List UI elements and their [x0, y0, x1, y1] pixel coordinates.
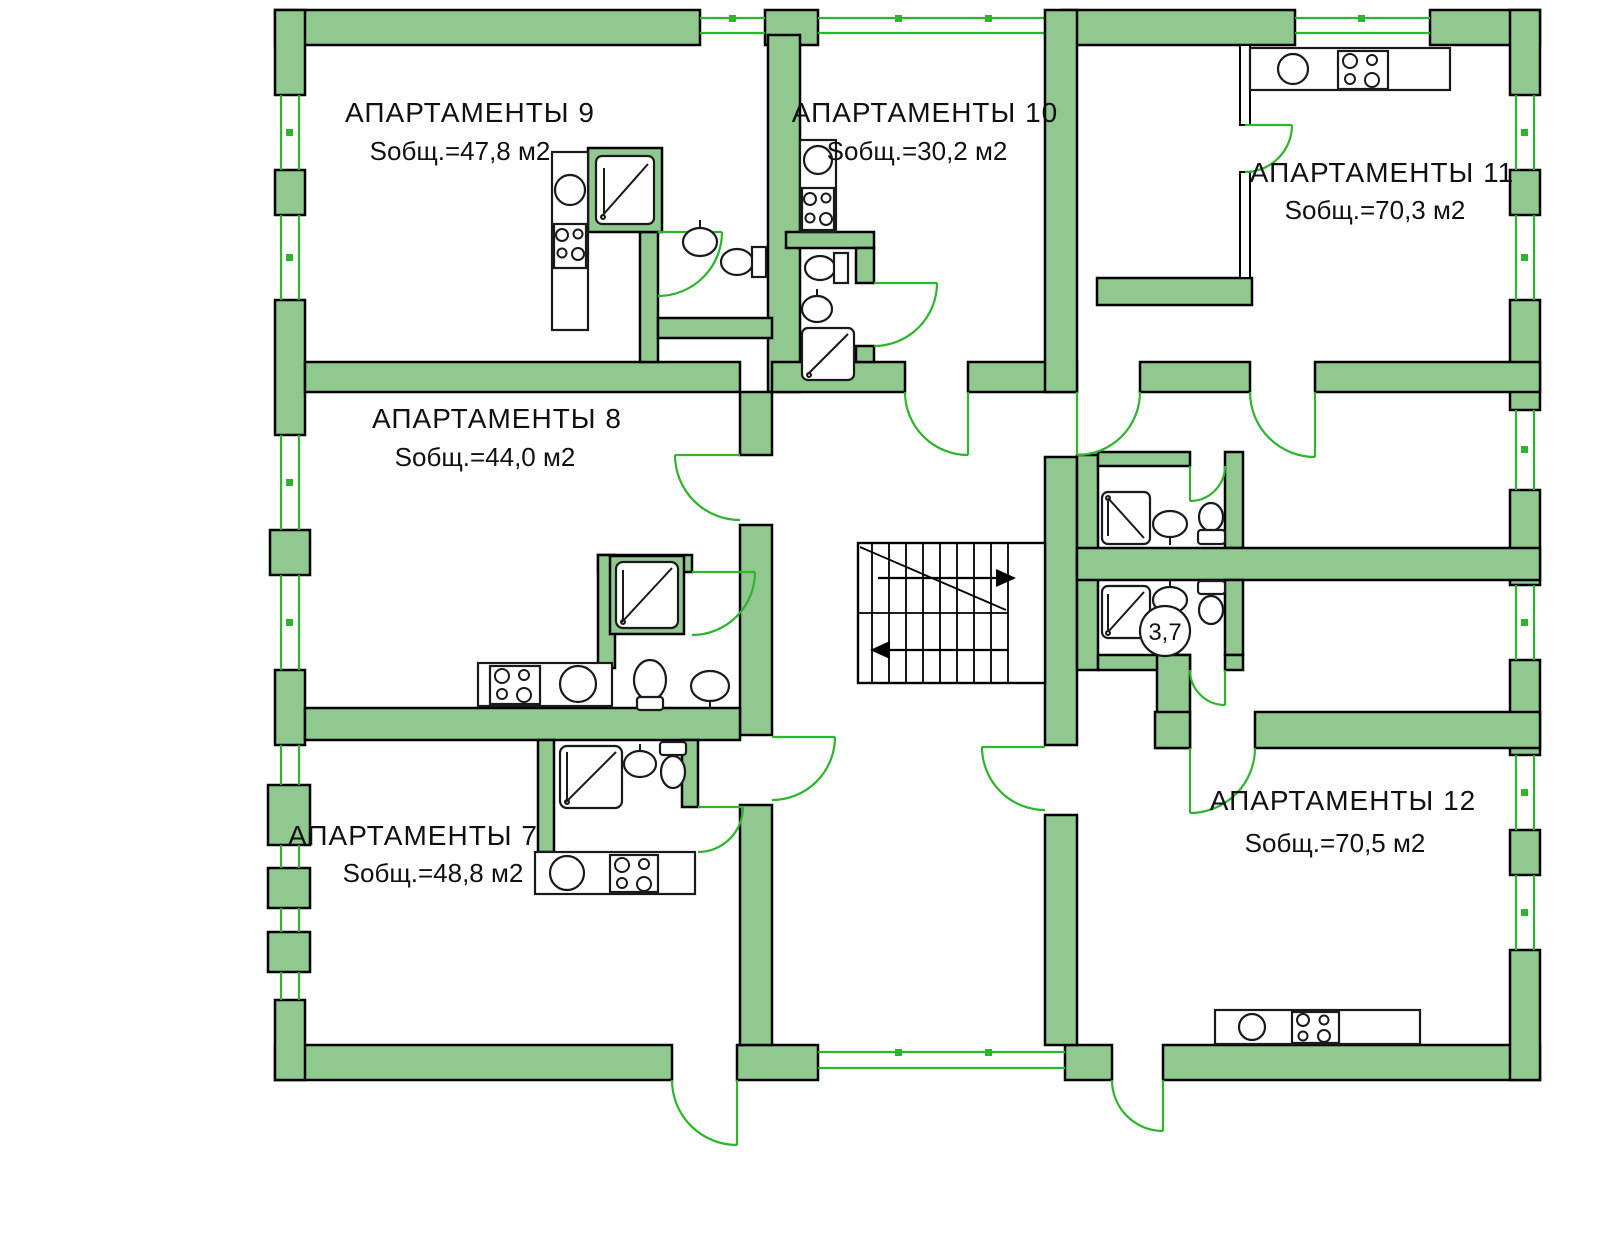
floor-plan-page: 3,7 АПАРТАМЕНТЫ 9 Sобщ.=47,8 м2 АПАРТАМЕ…	[0, 0, 1600, 1233]
stove-icon	[610, 855, 658, 892]
shower-icon	[802, 328, 854, 380]
toilet-icon	[660, 742, 686, 788]
washbasin-icon	[683, 220, 717, 256]
shower-icon	[596, 156, 654, 224]
apartment-11-area: Sобщ.=70,3 м2	[1285, 195, 1466, 225]
door-corridor-north-left	[905, 392, 968, 455]
toilet-icon	[634, 660, 666, 710]
stove-icon	[554, 224, 586, 268]
apartment-10-area: Sобщ.=30,2 м2	[827, 136, 1008, 166]
stove-icon	[1292, 1012, 1339, 1043]
stove-icon	[490, 666, 540, 704]
apartment-7-area: Sобщ.=48,8 м2	[343, 858, 524, 888]
stove-icon	[1338, 51, 1388, 89]
door-apt11-entry	[1077, 392, 1140, 455]
door-apt10-bath	[874, 283, 937, 346]
room-labels: АПАРТАМЕНТЫ 9 Sобщ.=47,8 м2 АПАРТАМЕНТЫ …	[288, 97, 1514, 888]
apartment-9-area: Sобщ.=47,8 м2	[370, 136, 551, 166]
apartment-11-name: АПАРТАМЕНТЫ 11	[1250, 157, 1514, 188]
room-area-badge: 3,7	[1140, 606, 1190, 656]
kitchen-counter-apt11	[1250, 48, 1450, 90]
kitchen-sink-icon	[555, 175, 585, 205]
apartment-12-area: Sобщ.=70,5 м2	[1245, 828, 1426, 858]
washbasin-icon	[624, 744, 656, 777]
apartment-7-name: АПАРТАМЕНТЫ 7	[288, 820, 538, 851]
apartment-8-name: АПАРТАМЕНТЫ 8	[372, 403, 622, 434]
kitchen-counter-apt12	[1215, 1010, 1420, 1044]
apartment-8-area: Sобщ.=44,0 м2	[395, 442, 576, 472]
kitchen-sink-icon	[550, 856, 584, 890]
door-bath12	[1190, 670, 1225, 705]
kitchen-counter-apt9	[552, 152, 588, 330]
door-apt8-entry	[675, 455, 740, 520]
apartment-12-name: АПАРТАМЕНТЫ 12	[1210, 785, 1476, 816]
entrance-door-left	[672, 1080, 737, 1145]
staircase	[858, 543, 1045, 683]
stove-icon	[802, 188, 834, 230]
shower-icon	[1102, 492, 1150, 544]
shower-icon	[560, 746, 622, 808]
entrance-door-right	[1112, 1080, 1163, 1131]
kitchen-sink-icon	[1239, 1014, 1265, 1040]
washbasin-icon	[802, 289, 832, 322]
apartment-9-name: АПАРТАМЕНТЫ 9	[345, 97, 595, 128]
toilet-icon	[721, 247, 766, 277]
door-apt11-room	[1250, 392, 1315, 457]
kitchen-sink-icon	[560, 666, 596, 702]
door-apt7-bath	[698, 807, 743, 852]
toilet-icon	[1198, 581, 1225, 624]
door-apt12-entry	[982, 747, 1045, 810]
bathroom-area-label: 3,7	[1148, 619, 1181, 646]
door-apt7-entry	[772, 737, 835, 800]
washbasin-icon	[691, 671, 729, 709]
shower-icon	[616, 562, 678, 628]
toilet-icon	[805, 253, 848, 283]
kitchen-counter-apt8	[478, 663, 612, 706]
apartment-10-name: АПАРТАМЕНТЫ 10	[792, 97, 1058, 128]
kitchen-counter-apt7	[535, 852, 695, 894]
toilet-icon	[1198, 503, 1225, 544]
washbasin-icon	[1153, 511, 1187, 545]
door-bath11	[1190, 466, 1225, 501]
floor-plan-drawing: 3,7 АПАРТАМЕНТЫ 9 Sобщ.=47,8 м2 АПАРТАМЕ…	[0, 0, 1600, 1233]
kitchen-sink-icon	[1278, 54, 1308, 84]
